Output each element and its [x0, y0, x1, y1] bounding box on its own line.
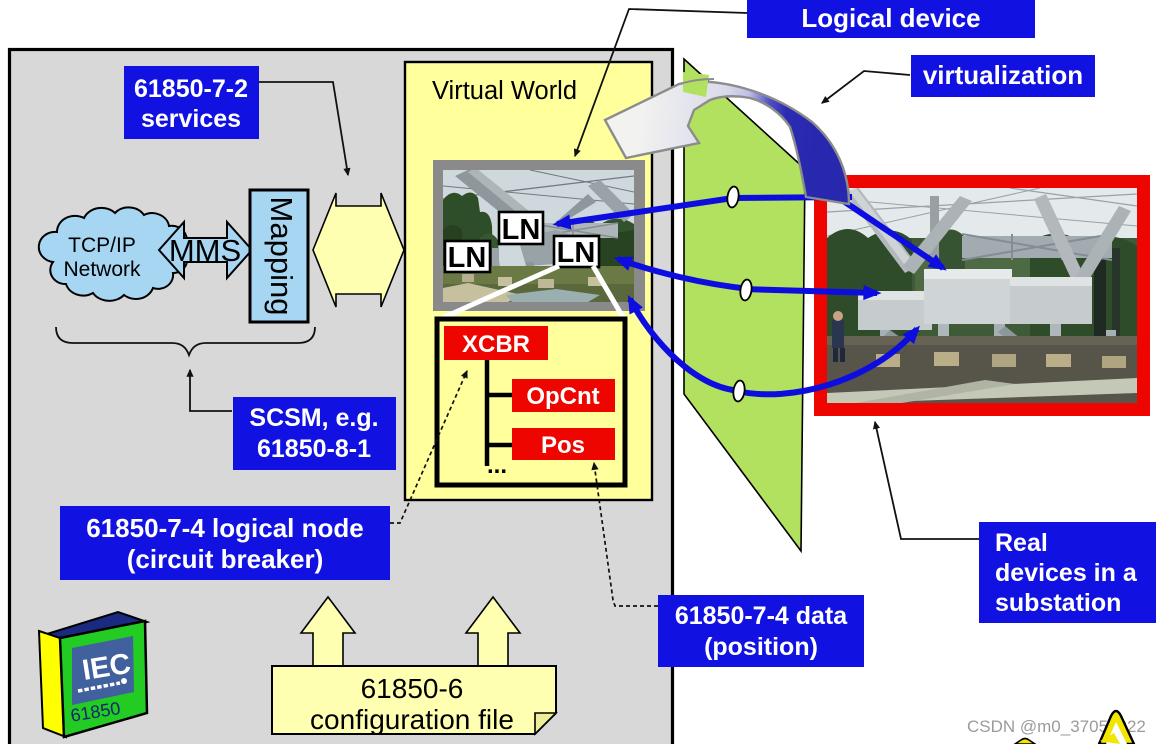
svg-text:TCP/IP: TCP/IP — [68, 234, 136, 257]
svg-text:61850-7-2: 61850-7-2 — [134, 75, 248, 103]
svg-text:61850-6: 61850-6 — [361, 673, 464, 704]
svg-text:MMS: MMS — [169, 233, 241, 268]
svg-text:OpCnt: OpCnt — [526, 383, 599, 410]
svg-text:substation: substation — [995, 589, 1121, 617]
svg-text:Virtual World: Virtual World — [432, 77, 577, 105]
svg-text:virtualization: virtualization — [923, 60, 1083, 90]
svg-text:XCBR: XCBR — [462, 331, 530, 358]
svg-text:Network: Network — [63, 258, 141, 281]
svg-text:61850-8-1: 61850-8-1 — [257, 435, 371, 463]
svg-text:Pos: Pos — [541, 432, 585, 459]
svg-text:Mapping: Mapping — [264, 197, 299, 316]
svg-text:(circuit breaker): (circuit breaker) — [127, 544, 324, 574]
svg-text:61850-7-4 data: 61850-7-4 data — [675, 602, 848, 630]
svg-text:SCSM, e.g.: SCSM, e.g. — [249, 404, 378, 432]
svg-text:Logical device: Logical device — [801, 3, 980, 33]
svg-text:...: ... — [487, 452, 507, 479]
svg-text:devices in a: devices in a — [995, 559, 1138, 587]
svg-text:Real: Real — [995, 529, 1048, 557]
svg-text:61850-7-4 logical node: 61850-7-4 logical node — [86, 513, 363, 543]
svg-text:LN: LN — [448, 242, 487, 274]
svg-text:LN: LN — [557, 237, 596, 269]
svg-text:services: services — [141, 105, 241, 133]
svg-text:(position): (position) — [704, 633, 818, 661]
svg-text:configuration file: configuration file — [310, 704, 514, 735]
svg-text:LN: LN — [502, 214, 541, 246]
